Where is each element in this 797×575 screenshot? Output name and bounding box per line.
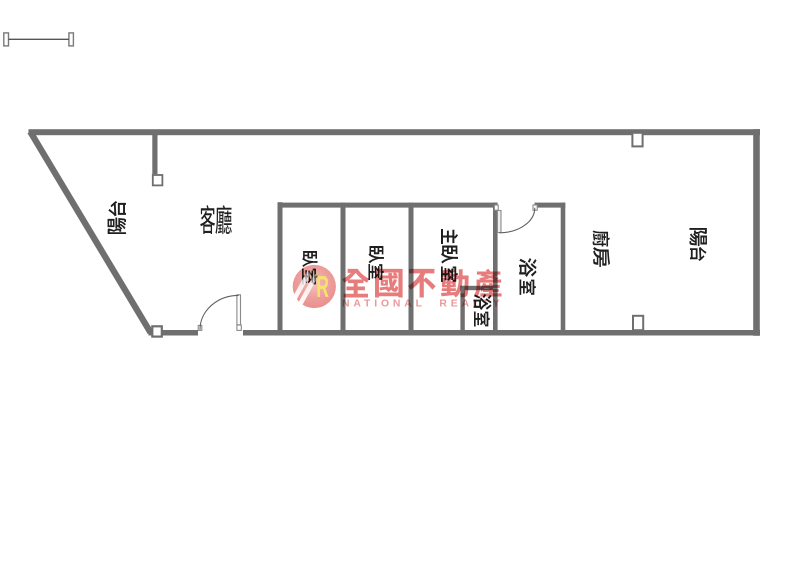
svg-text:R: R <box>316 270 329 304</box>
svg-text:NATIONAL REALTY: NATIONAL REALTY <box>342 299 500 310</box>
